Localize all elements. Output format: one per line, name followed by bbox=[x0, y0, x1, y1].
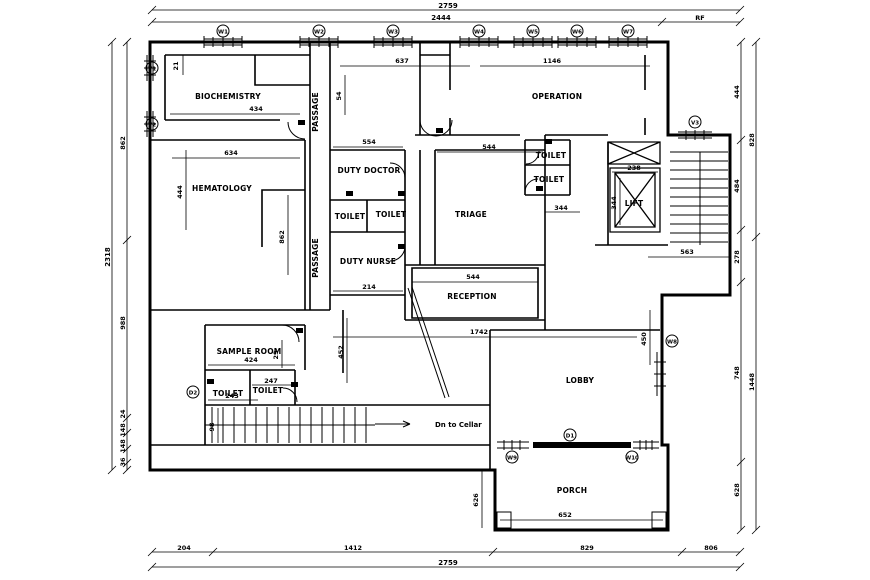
stairs-note: Dn to Cellar bbox=[435, 421, 482, 429]
tag-v3: V3 bbox=[689, 116, 701, 128]
dim-bottom-2: 1412 bbox=[344, 544, 362, 552]
inner-walls bbox=[150, 42, 668, 470]
dim-left-6: 36 bbox=[119, 457, 127, 467]
stair-right bbox=[670, 152, 728, 245]
dim-top-inner-1: 2444 bbox=[431, 14, 451, 22]
dim-int-862: 862 bbox=[278, 230, 286, 244]
border-dimensions: 2759 2444 RF 204 1412 829 806 2759 2318 … bbox=[104, 2, 756, 567]
outer-boundary bbox=[150, 42, 730, 530]
room-label-reception: RECEPTION bbox=[447, 292, 496, 301]
room-label-passage-top: PASSAGE bbox=[311, 92, 320, 132]
tag-w1-label: W1 bbox=[218, 30, 228, 36]
tag-w5-label: W5 bbox=[528, 30, 538, 36]
dim-int-424: 424 bbox=[244, 356, 258, 364]
room-label-toilet-mid-right: TOILET bbox=[376, 210, 407, 219]
dim-right-5: 628 bbox=[733, 483, 741, 497]
dim-int-21: 21 bbox=[172, 61, 180, 71]
tag-w10-label: W10 bbox=[625, 456, 639, 462]
dim-int-214: 214 bbox=[362, 283, 376, 291]
dim-int-344b: 344 bbox=[554, 204, 568, 212]
dim-int-450: 450 bbox=[640, 332, 648, 346]
dim-bottom-1: 204 bbox=[177, 544, 191, 552]
entrance-door-sill bbox=[533, 442, 631, 448]
room-label-hematology: HEMATOLOGY bbox=[192, 184, 252, 193]
dim-int-344a: 344 bbox=[610, 196, 618, 210]
dim-int-637: 637 bbox=[395, 57, 409, 65]
tag-w10: W10 bbox=[625, 451, 639, 463]
room-label-operation: OPERATION bbox=[532, 92, 582, 101]
room-label-passage-bottom: PASSAGE bbox=[311, 238, 320, 278]
dim-int-247: 247 bbox=[264, 377, 278, 385]
stair-bottom-treads bbox=[205, 407, 410, 443]
floor-plan-drawing: BIOCHEMISTRY HEMATOLOGY PASSAGE PASSAGE … bbox=[0, 0, 870, 580]
dim-int-238: 238 bbox=[627, 164, 641, 172]
room-label-porch: PORCH bbox=[557, 486, 587, 495]
room-label-duty-nurse: DUTY NURSE bbox=[340, 257, 396, 266]
tag-w4: W4 bbox=[473, 25, 485, 37]
right-lobby-window bbox=[654, 352, 666, 396]
dim-left-1: 862 bbox=[119, 136, 127, 150]
dim-int-54: 54 bbox=[335, 91, 343, 101]
dim-int-98: 98 bbox=[208, 422, 216, 432]
room-label-toilet-lift-upper: TOILET bbox=[536, 151, 567, 160]
tag-w2-label: W2 bbox=[314, 30, 324, 36]
dim-int-452: 452 bbox=[337, 345, 345, 359]
dim-int-544a: 544 bbox=[482, 143, 496, 151]
dim-int-563: 563 bbox=[680, 248, 694, 256]
floor-plan-canvas: BIOCHEMISTRY HEMATOLOGY PASSAGE PASSAGE … bbox=[0, 0, 870, 580]
dim-int-434: 434 bbox=[249, 105, 263, 113]
door-arcs bbox=[282, 120, 539, 402]
dim-bottom-outer: 2759 bbox=[438, 559, 458, 567]
room-label-biochemistry: BIOCHEMISTRY bbox=[195, 92, 261, 101]
lift-shaft bbox=[608, 142, 660, 232]
tag-w3-label: W3 bbox=[388, 30, 398, 36]
dim-top-inner-2: RF bbox=[695, 14, 704, 22]
tag-d1: D1 bbox=[564, 429, 576, 441]
dim-int-634: 634 bbox=[224, 149, 238, 157]
dim-top-outer: 2759 bbox=[438, 2, 458, 10]
door-swings bbox=[282, 120, 539, 402]
dim-int-29: 29 bbox=[272, 350, 280, 360]
tag-w9-label: W9 bbox=[507, 456, 517, 462]
dim-int-652: 652 bbox=[558, 511, 572, 519]
ramp-diagonal bbox=[408, 287, 449, 398]
room-label-toilet-bl-right: TOILET bbox=[253, 386, 284, 395]
dimension-lines bbox=[108, 6, 760, 571]
tag-v1: V1 bbox=[146, 62, 158, 74]
dim-bottom-4: 806 bbox=[704, 544, 718, 552]
tag-w1: W1 bbox=[217, 25, 229, 37]
dim-right-1: 444 bbox=[733, 85, 741, 99]
tag-v2: V2 bbox=[146, 118, 158, 130]
dim-int-554: 554 bbox=[362, 138, 376, 146]
lift-box-crossed bbox=[608, 142, 660, 232]
dim-left-4: 148 bbox=[119, 423, 127, 437]
tag-w7: W7 bbox=[622, 25, 634, 37]
dim-left-2: 988 bbox=[119, 316, 127, 330]
dim-int-444: 444 bbox=[176, 185, 184, 199]
tag-w3: W3 bbox=[387, 25, 399, 37]
tag-d2-label: D2 bbox=[189, 391, 198, 397]
dim-left-3: 24 bbox=[119, 409, 127, 419]
tag-v3-label: V3 bbox=[691, 121, 699, 127]
tag-w9: W9 bbox=[506, 451, 518, 463]
dim-left-5: 148 bbox=[119, 439, 127, 453]
tag-w2: W2 bbox=[313, 25, 325, 37]
tag-w8: W8 bbox=[666, 335, 678, 347]
partition-walls bbox=[150, 42, 668, 470]
dim-ticks bbox=[108, 6, 760, 571]
room-label-toilet-mid-left: TOILET bbox=[335, 212, 366, 221]
dim-int-626: 626 bbox=[472, 493, 480, 507]
tag-v1-label: V1 bbox=[148, 67, 156, 73]
dim-int-243: 243 bbox=[225, 392, 239, 400]
dim-int-544b: 544 bbox=[466, 273, 480, 281]
dim-right-outer-1: 828 bbox=[748, 133, 756, 147]
tag-w5: W5 bbox=[527, 25, 539, 37]
dim-left-outer: 2318 bbox=[104, 247, 112, 267]
stair-bottom bbox=[205, 407, 410, 443]
dim-right-4: 748 bbox=[733, 366, 741, 380]
stair-right-treads bbox=[670, 152, 728, 245]
room-label-lift: LIFT bbox=[625, 199, 644, 208]
dim-right-2: 484 bbox=[733, 179, 741, 193]
dim-int-1146: 1146 bbox=[543, 57, 562, 65]
tag-w8-label: W8 bbox=[667, 340, 677, 346]
dim-right-outer-2: 1448 bbox=[748, 372, 756, 391]
tag-w4-label: W4 bbox=[474, 30, 484, 36]
interior-dimensions: 21 637 1146 434 634 444 862 554 544 214 … bbox=[172, 57, 694, 519]
room-label-triage: TRIAGE bbox=[455, 210, 487, 219]
room-label-duty-doctor: DUTY DOCTOR bbox=[337, 166, 400, 175]
tag-d1-label: D1 bbox=[566, 434, 575, 440]
dim-int-1742: 1742 bbox=[470, 328, 488, 336]
outer-walls bbox=[150, 42, 730, 530]
tag-w6-label: W6 bbox=[572, 30, 582, 36]
room-label-lobby: LOBBY bbox=[566, 376, 595, 385]
dim-bottom-3: 829 bbox=[580, 544, 594, 552]
tag-w6: W6 bbox=[571, 25, 583, 37]
tag-v2-label: V2 bbox=[148, 123, 156, 129]
room-label-toilet-lift-lower: TOILET bbox=[534, 175, 565, 184]
tag-w7-label: W7 bbox=[623, 30, 633, 36]
tag-d2: D2 bbox=[187, 386, 199, 398]
dim-right-3: 278 bbox=[733, 250, 741, 264]
